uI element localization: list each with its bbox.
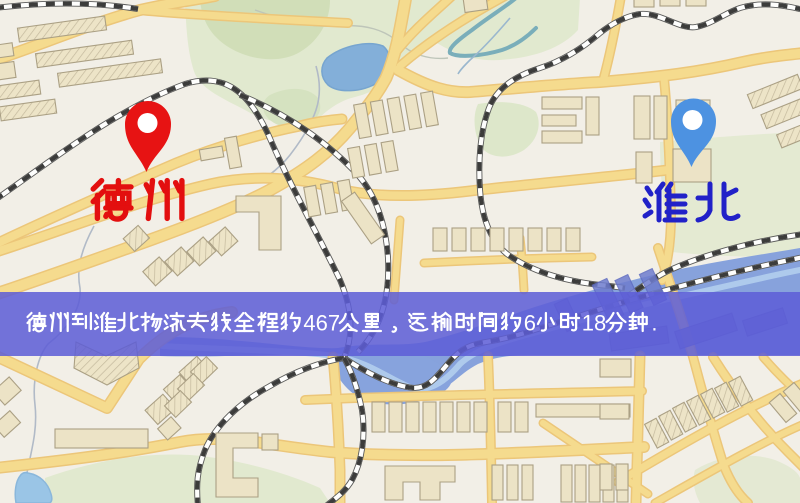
svg-text:18: 18: [582, 311, 606, 336]
svg-text:467: 467: [303, 311, 340, 336]
svg-text:6: 6: [524, 311, 536, 336]
svg-text:.: .: [651, 311, 657, 336]
